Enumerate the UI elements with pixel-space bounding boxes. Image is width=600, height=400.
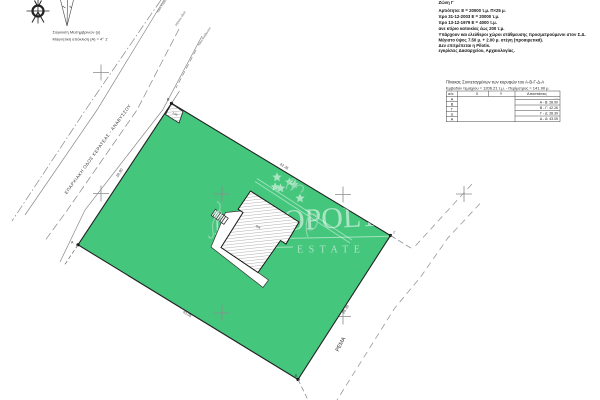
- svg-text:Αρτιότητα: Ε = 20000 τ.μ.: Αρτιότητα: Ε = 20000 τ.μ. Π×25 μ.: [439, 8, 506, 13]
- svg-text:Γ - Δ: 28.39: Γ - Δ: 28.39: [540, 112, 558, 116]
- svg-text:Δ - Α: 43.05: Δ - Α: 43.05: [540, 117, 558, 121]
- svg-text:Γ: Γ: [451, 107, 453, 111]
- svg-text:Πίνακας Συντεταγμένων των κορυ: Πίνακας Συντεταγμένων των κορυφών του Α-…: [446, 80, 544, 85]
- svg-text:Δ: Δ: [451, 112, 454, 116]
- svg-text:Α: Α: [451, 118, 454, 122]
- svg-text:Δεν επιτρέπεται η Pilotis.: Δεν επιτρέπεται η Pilotis.: [439, 43, 491, 48]
- svg-text:Σύγκλιση Μεσημβρινών (γ): Σύγκλιση Μεσημβρινών (γ): [53, 30, 101, 35]
- svg-text:προ 13-12-1979 Ε = 4000 τ.μ.: προ 13-12-1979 Ε = 4000 τ.μ.: [439, 20, 497, 25]
- svg-text:Υπάρχουν και ελεύθεροι χώροι σ: Υπάρχουν και ελεύθεροι χώροι στάθμευσης …: [439, 32, 586, 37]
- svg-text:εγκρίσεις Δασαρχείου, Αρχαιολο: εγκρίσεις Δασαρχείου, Αρχαιολογίας.: [439, 48, 515, 53]
- svg-text:Β - Γ: 42.26: Β - Γ: 42.26: [540, 106, 558, 110]
- svg-text:....: ....: [554, 96, 558, 100]
- svg-text:Μαγνητική απόκλιση (Α) = 4° 1': Μαγνητική απόκλιση (Α) = 4° 1': [53, 37, 109, 42]
- svg-text:ESTATE: ESTATE: [297, 244, 365, 255]
- svg-text:Εμβαδόν τεμαχίου = 1206.21 τ.μ: Εμβαδόν τεμαχίου = 1206.21 τ.μ. - Περίμε…: [446, 85, 550, 90]
- svg-text:Υ: Υ: [500, 92, 503, 96]
- svg-text:ανε κτίριο κατοικίας έως 200 τ: ανε κτίριο κατοικίας έως 200 τ.μ.: [439, 26, 505, 31]
- svg-text:Α: Α: [451, 97, 454, 101]
- svg-text:Ζώνη Γ: Ζώνη Γ: [439, 0, 454, 5]
- svg-text:προ 31-12-2003 Ε = 20000 τ.μ.: προ 31-12-2003 Ε = 20000 τ.μ.: [439, 14, 500, 19]
- svg-text:Γ: Γ: [394, 231, 396, 235]
- svg-text:α/α: α/α: [448, 92, 454, 96]
- svg-text:Β: Β: [451, 102, 454, 106]
- svg-text:Χ: Χ: [476, 92, 479, 96]
- svg-text:Αποστάσεις: Αποστάσεις: [527, 92, 547, 96]
- svg-text:Α - Β: 28.90: Α - Β: 28.90: [540, 101, 558, 105]
